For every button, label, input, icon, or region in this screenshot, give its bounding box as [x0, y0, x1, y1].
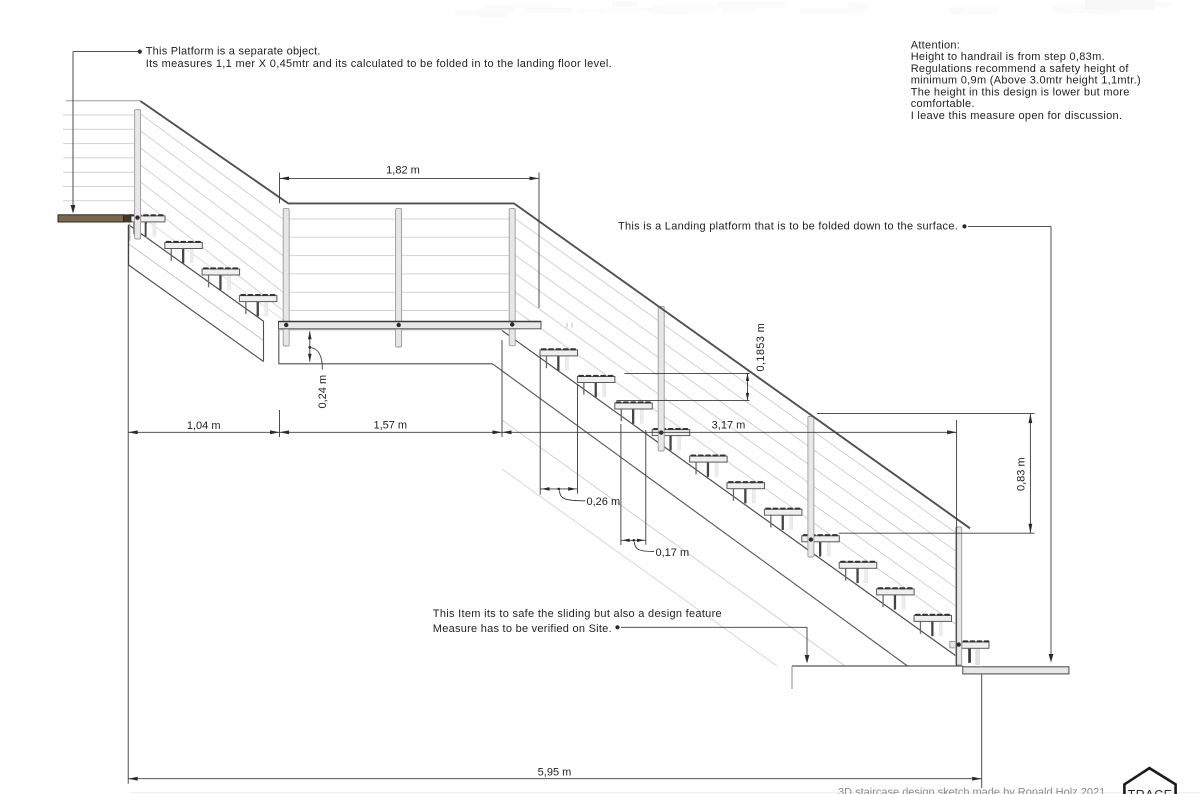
- svg-text:3,17 m: 3,17 m: [712, 420, 746, 432]
- svg-text:This Platform is a separate ob: This Platform is a separate object.: [146, 46, 321, 58]
- svg-text:Height to handrail is from ste: Height to handrail is from step 0,83m.: [911, 51, 1105, 63]
- svg-text:This is a Landing platform tha: This is a Landing platform that is to be…: [618, 221, 958, 233]
- svg-text:0,24 m: 0,24 m: [317, 375, 329, 409]
- svg-text:Regulations recommend a safety: Regulations recommend a safety height of: [911, 63, 1130, 75]
- svg-text:0,17 m: 0,17 m: [656, 547, 690, 559]
- svg-text:1,04 m: 1,04 m: [187, 420, 221, 432]
- svg-text:0,1853 m: 0,1853 m: [755, 323, 767, 372]
- svg-text:Measure has to be verified on: Measure has to be verified on Site.: [433, 623, 612, 635]
- svg-text:minimum 0,9m (Above 3.0mtr hei: minimum 0,9m (Above 3.0mtr height 1,1mtr…: [911, 75, 1141, 87]
- svg-text:5,95 m: 5,95 m: [538, 767, 572, 779]
- svg-text:0,83 m: 0,83 m: [1016, 457, 1028, 491]
- svg-text:0,26 m: 0,26 m: [587, 496, 621, 508]
- svg-text:I leave this measure open for: I leave this measure open for discussion…: [911, 110, 1123, 122]
- svg-text:TRACE: TRACE: [1128, 788, 1173, 794]
- svg-text:Its measures 1,1 mer X 0,45mtr: Its measures 1,1 mer X 0,45mtr and its c…: [146, 58, 612, 70]
- svg-text:Attention:: Attention:: [911, 39, 960, 51]
- svg-text:comfortable.: comfortable.: [911, 98, 975, 110]
- svg-text:The height in this design is l: The height in this design is lower but m…: [911, 86, 1130, 98]
- svg-text:This Item its to safe the slid: This Item its to safe the sliding but al…: [433, 608, 722, 620]
- svg-text:1,57 m: 1,57 m: [373, 420, 407, 432]
- svg-text:3D staircase design sketch mad: 3D staircase design sketch made by Ronal…: [838, 787, 1105, 794]
- svg-text:1,82 m: 1,82 m: [386, 165, 420, 177]
